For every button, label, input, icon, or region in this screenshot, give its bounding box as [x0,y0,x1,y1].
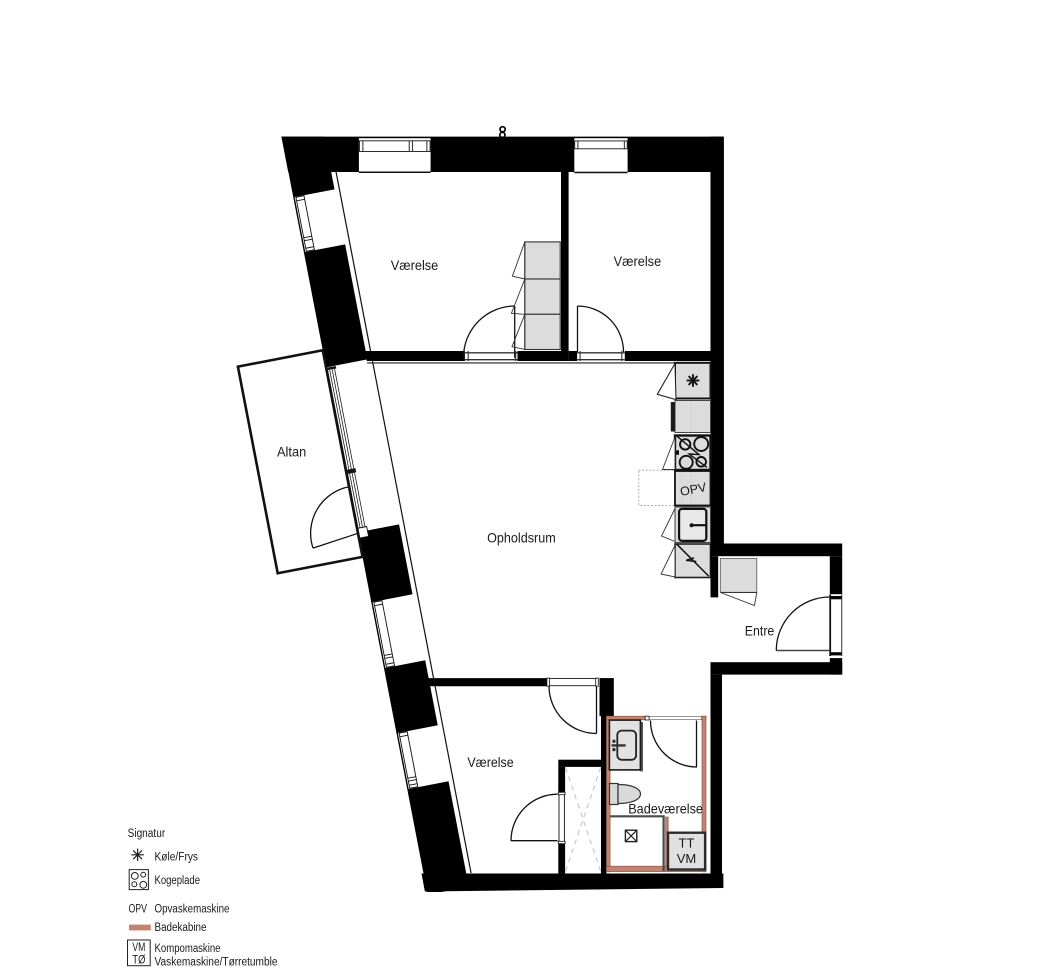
svg-text:VM: VM [677,851,697,866]
svg-text:VM: VM [132,942,145,954]
svg-text:Entre: Entre [745,622,775,638]
svg-text:TT: TT [679,836,695,851]
svg-text:Kompomaskine: Kompomaskine [155,943,221,955]
svg-text:Badekabine: Badekabine [155,922,207,934]
svg-text:Badeværelse: Badeværelse [628,801,703,817]
svg-text:Værelse: Værelse [614,253,662,269]
svg-text:Opvaskemaskine: Opvaskemaskine [155,904,230,916]
svg-text:Værelse: Værelse [391,257,439,273]
svg-text:Køle/Frys: Køle/Frys [155,851,199,863]
svg-text:Vaskemaskine/Tørretumble: Vaskemaskine/Tørretumble [155,957,278,969]
svg-text:Værelse: Værelse [467,754,513,770]
svg-text:Opholdsrum: Opholdsrum [487,530,556,545]
svg-text:TØ: TØ [132,955,145,967]
svg-text:Kogeplade: Kogeplade [155,875,201,887]
svg-text:OPV: OPV [129,904,148,916]
svg-text:Altan: Altan [277,444,306,460]
svg-text:Signatur: Signatur [128,828,166,840]
